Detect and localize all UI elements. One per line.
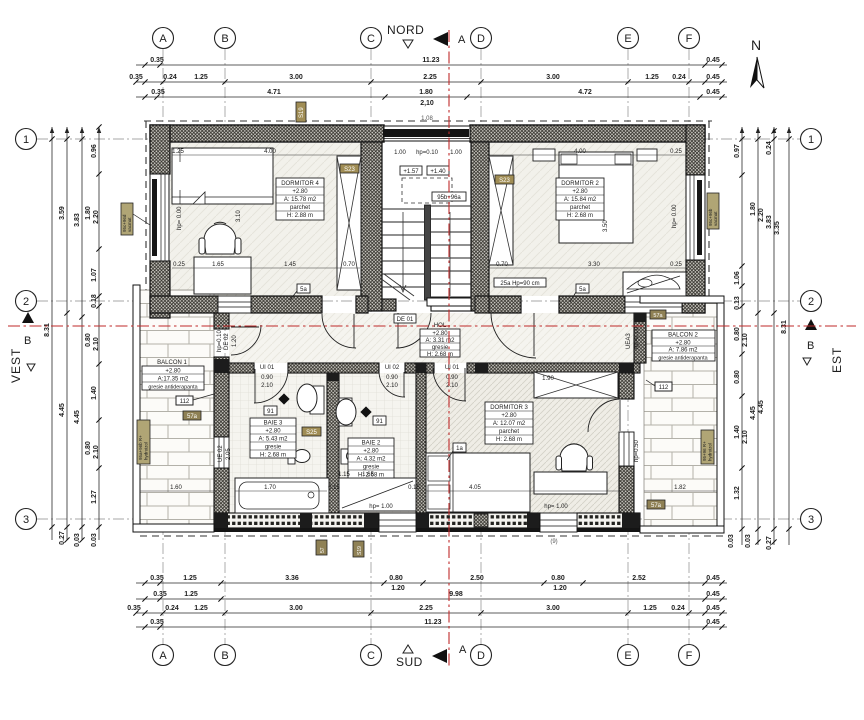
svg-text:A: 7.86 m2: A: 7.86 m2 [668,348,698,354]
svg-text:hp= 1.00: hp= 1.00 [369,504,393,510]
svg-text:DORMITOR 2: DORMITOR 2 [561,181,599,187]
svg-text:A: 12.07 m2: A: 12.07 m2 [493,421,526,427]
svg-text:hp= 0.00: hp= 0.00 [177,206,183,230]
svg-text:A: 4.32 m2: A: 4.32 m2 [356,457,386,463]
svg-text:C: C [367,650,375,662]
svg-text:0.80: 0.80 [85,333,92,347]
svg-text:hydroizol: hydroizol [708,443,713,461]
svg-text:hp= 1.00: hp= 1.00 [544,504,568,510]
svg-text:3.00: 3.00 [289,605,303,612]
svg-text:0.45: 0.45 [706,619,720,626]
svg-text:57a: 57a [653,313,663,319]
svg-text:3.36: 3.36 [285,575,299,582]
svg-text:4.71: 4.71 [267,89,281,96]
svg-text:0.90: 0.90 [446,375,458,381]
svg-text:SUD: SUD [396,655,423,669]
svg-text:1: 1 [808,134,814,146]
svg-text:0.27: 0.27 [766,536,773,550]
svg-text:0.25: 0.25 [173,262,185,268]
svg-text:0.45: 0.45 [706,591,720,598]
svg-text:F: F [686,650,693,662]
svg-text:BALCON 2: BALCON 2 [668,333,698,339]
svg-text:vacmat: vacmat [713,211,718,226]
svg-text:0.45: 0.45 [706,575,720,582]
svg-text:A: A [159,33,167,45]
svg-text:57a: 57a [187,414,198,420]
svg-text:1.07: 1.07 [91,268,98,282]
svg-text:A: 15.78 m2: A: 15.78 m2 [284,197,317,203]
svg-text:0.45: 0.45 [706,57,720,64]
svg-text:0.03: 0.03 [74,533,81,547]
svg-text:91: 91 [267,409,274,415]
svg-text:gresie: gresie [363,465,380,471]
svg-text:3.00: 3.00 [546,605,560,612]
svg-text:3.83: 3.83 [74,213,81,227]
svg-text:B: B [221,33,228,45]
svg-text:S23: S23 [344,167,355,173]
svg-text:BAIE 2: BAIE 2 [362,441,381,447]
svg-text:4.45: 4.45 [758,400,765,414]
svg-text:D: D [477,650,485,662]
svg-text:+2.80: +2.80 [501,413,517,419]
svg-text:2.20: 2.20 [758,208,765,222]
svg-text:S19: S19 [299,107,305,118]
svg-text:gresie antiderapanta: gresie antiderapanta [658,356,707,362]
svg-text:B: B [221,650,228,662]
svg-text:2.10: 2.10 [93,337,100,351]
svg-text:0.80: 0.80 [389,575,403,582]
svg-text:gresie: gresie [265,445,282,451]
svg-text:0.80: 0.80 [734,327,741,341]
svg-text:+1.40: +1.40 [430,169,446,175]
svg-text:57a: 57a [651,503,662,509]
svg-text:1.25: 1.25 [172,149,184,155]
svg-text:E: E [624,650,631,662]
svg-text:91: 91 [376,419,383,425]
svg-text:0.70: 0.70 [343,262,355,268]
svg-text:parchet: parchet [290,205,310,211]
svg-text:5a: 5a [579,287,586,293]
svg-text:2,10: 2,10 [420,100,434,107]
svg-text:3: 3 [808,514,814,526]
svg-text:1.20: 1.20 [232,335,238,347]
svg-text:1.25: 1.25 [194,605,208,612]
svg-text:95+96 R+: 95+96 R+ [702,441,707,461]
svg-text:1.40: 1.40 [734,425,741,439]
svg-text:1.65: 1.65 [362,472,374,478]
svg-text:0.90: 0.90 [386,375,398,381]
svg-text:0.35: 0.35 [151,89,165,96]
svg-text:3.50: 3.50 [603,220,609,232]
svg-text:gresie: gresie [432,345,449,351]
svg-text:95a+96b R+: 95a+96b R+ [138,435,143,460]
svg-text:1.25: 1.25 [194,74,208,81]
svg-text:(9): (9) [550,539,557,545]
svg-text:+1.57: +1.57 [403,169,419,175]
svg-text:4.05: 4.05 [469,485,481,491]
svg-text:0.80: 0.80 [85,441,92,455]
svg-text:2.25: 2.25 [419,605,433,612]
svg-text:0.25: 0.25 [670,262,682,268]
svg-text:DE 02: DE 02 [224,333,230,350]
svg-text:3.10: 3.10 [236,210,242,222]
svg-text:+2.80: +2.80 [265,429,281,435]
svg-text:0.03: 0.03 [745,534,752,548]
svg-text:2.25: 2.25 [423,74,437,81]
svg-text:N: N [751,37,761,53]
svg-text:9.98: 9.98 [449,591,463,598]
svg-text:D: D [477,33,485,45]
svg-text:A: 5.43 m2: A: 5.43 m2 [258,437,288,443]
svg-text:5a: 5a [300,287,307,293]
svg-text:2.10: 2.10 [742,430,749,444]
svg-text:0.35: 0.35 [150,57,164,64]
svg-text:+2.80: +2.80 [363,449,379,455]
svg-text:1.60: 1.60 [170,485,182,491]
svg-text:0.80: 0.80 [551,575,565,582]
svg-text:2.10: 2.10 [386,383,398,389]
svg-text:NORD: NORD [387,23,424,37]
svg-text:parchet: parchet [499,429,519,435]
svg-text:1.00: 1.00 [450,150,462,156]
svg-text:0.45: 0.45 [706,89,720,96]
svg-text:VEST: VEST [9,348,23,383]
svg-text:3.30: 3.30 [588,262,600,268]
svg-text:A: 15.84 m2: A: 15.84 m2 [564,197,597,203]
svg-text:UE 02: UE 02 [218,445,224,462]
svg-text:4.00: 4.00 [264,149,276,155]
svg-text:A: A [159,650,167,662]
svg-text:0.15: 0.15 [328,485,340,491]
svg-text:3: 3 [23,514,29,526]
svg-text:+2.80: +2.80 [165,369,181,375]
svg-text:H: 2.68 m: H: 2.68 m [496,437,522,443]
svg-text:3.83: 3.83 [766,215,773,229]
svg-text:2.50: 2.50 [470,575,484,582]
svg-text:11.23: 11.23 [424,619,441,626]
svg-text:8.31: 8.31 [781,320,788,334]
svg-text:C: C [367,33,375,45]
svg-text:2.10: 2.10 [261,383,273,389]
svg-text:0.35: 0.35 [153,591,167,598]
svg-text:0.35: 0.35 [150,575,164,582]
svg-text:1.25: 1.25 [184,591,198,598]
svg-text:hp=0.10: hp=0.10 [634,326,640,349]
svg-text:S23: S23 [499,178,510,184]
svg-text:2: 2 [23,296,29,308]
svg-text:S19: S19 [357,546,363,555]
svg-text:2.20: 2.20 [93,210,100,224]
svg-text:H: 2.68 m: H: 2.68 m [260,453,286,459]
svg-text:0.24: 0.24 [766,141,773,155]
svg-text:+2.80: +2.80 [432,331,448,337]
svg-text:1: 1 [23,134,29,146]
svg-text:3.00: 3.00 [289,74,303,81]
svg-text:2.05: 2.05 [226,448,232,460]
svg-text:A: A [458,34,466,46]
svg-text:1.25: 1.25 [643,605,657,612]
svg-text:S25: S25 [306,430,317,436]
svg-text:UI 02: UI 02 [385,365,400,371]
svg-text:0.24: 0.24 [165,605,179,612]
svg-text:4.45: 4.45 [59,403,66,417]
svg-text:H: 2.68 m: H: 2.68 m [567,213,593,219]
svg-text:DORMITOR 3: DORMITOR 3 [490,405,528,411]
svg-text:UI 01: UI 01 [260,365,275,371]
svg-text:11.23: 11.23 [422,57,439,64]
svg-text:1.65: 1.65 [212,262,224,268]
svg-text:0.90: 0.90 [261,375,273,381]
svg-text:1.00: 1.00 [394,150,406,156]
svg-text:UI 01: UI 01 [445,365,460,371]
svg-text:hp=0.50: hp=0.50 [634,439,640,462]
svg-text:0.15: 0.15 [408,485,420,491]
svg-text:0.97: 0.97 [734,144,741,158]
svg-text:0.18: 0.18 [91,294,98,308]
svg-text:1.06: 1.06 [734,271,741,285]
svg-text:hp=0.10: hp=0.10 [416,150,439,156]
svg-text:1.15: 1.15 [338,472,350,478]
svg-text:1.82: 1.82 [674,485,686,491]
svg-text:B: B [24,335,31,347]
svg-text:4.72: 4.72 [578,89,592,96]
svg-text:0.70: 0.70 [496,262,508,268]
svg-text:0.24: 0.24 [671,605,685,612]
svg-text:0.25: 0.25 [670,149,682,155]
svg-text:0.35: 0.35 [127,605,141,612]
svg-text:2.10: 2.10 [446,383,458,389]
svg-text:1.80: 1.80 [419,89,433,96]
svg-text:1.45: 1.45 [284,262,296,268]
svg-text:DORMITOR 4: DORMITOR 4 [281,181,319,187]
svg-text:3.35: 3.35 [774,221,781,235]
svg-text:112: 112 [180,399,190,405]
svg-text:1.25: 1.25 [645,74,659,81]
svg-text:hp=0.10: hp=0.10 [217,329,223,352]
svg-text:57: 57 [320,547,326,553]
svg-text:vacmat: vacmat [127,217,132,232]
svg-text:F: F [686,33,693,45]
svg-text:DE 01: DE 01 [397,317,414,323]
svg-text:1.40: 1.40 [91,386,98,400]
svg-text:E: E [624,33,631,45]
svg-text:0.03: 0.03 [728,534,735,548]
svg-text:0.80: 0.80 [734,370,741,384]
svg-text:1.25: 1.25 [183,575,197,582]
svg-text:UEA3: UEA3 [626,333,632,349]
svg-text:hp= 0.00: hp= 0.00 [672,204,678,228]
svg-text:BAIE 3: BAIE 3 [264,421,283,427]
svg-text:2: 2 [808,296,814,308]
svg-text:parchet: parchet [570,205,590,211]
svg-text:1.20: 1.20 [391,585,405,592]
svg-text:8.31: 8.31 [44,323,51,337]
svg-text:0.27: 0.27 [59,531,66,545]
svg-text:A: 3.31 m2: A: 3.31 m2 [425,338,455,344]
svg-text:3.59: 3.59 [59,206,66,220]
svg-text:2.10: 2.10 [93,445,100,459]
svg-text:+2.80: +2.80 [292,189,308,195]
svg-text:112: 112 [659,385,669,391]
svg-text:2.52: 2.52 [632,575,646,582]
svg-text:A:17.35 m2: A:17.35 m2 [158,377,189,383]
svg-text:H: 2.88 m: H: 2.88 m [287,213,313,219]
svg-text:1.20: 1.20 [553,585,567,592]
svg-text:4.45: 4.45 [750,406,757,420]
svg-text:1a: 1a [456,446,463,452]
svg-text:0.96: 0.96 [91,144,98,158]
svg-text:25a Hp=90 cm: 25a Hp=90 cm [500,281,539,287]
svg-text:0.35: 0.35 [129,74,143,81]
svg-text:+2.80: +2.80 [675,341,691,347]
svg-text:0.45: 0.45 [706,74,720,81]
svg-text:0.13: 0.13 [734,296,741,310]
svg-text:hydroizol: hydroizol [144,442,149,460]
svg-text:1.80: 1.80 [750,202,757,216]
svg-text:gresie antiderapanta: gresie antiderapanta [148,385,197,391]
svg-text:0.24: 0.24 [672,74,686,81]
svg-text:1.70: 1.70 [264,485,276,491]
svg-text:A: A [459,644,467,656]
svg-text:EST: EST [830,347,844,373]
svg-text:1.90: 1.90 [542,376,554,382]
svg-text:1.32: 1.32 [734,486,741,500]
svg-text:B: B [807,340,814,352]
svg-text:BALCON 1: BALCON 1 [157,360,187,366]
svg-text:3.00: 3.00 [546,74,560,81]
svg-text:1.80: 1.80 [85,206,92,220]
svg-text:+2.80: +2.80 [572,189,588,195]
svg-text:2.10: 2.10 [742,333,749,347]
svg-text:0.45: 0.45 [706,605,720,612]
svg-text:4.45: 4.45 [74,410,81,424]
svg-text:0.03: 0.03 [91,533,98,547]
svg-text:0.24: 0.24 [163,74,177,81]
svg-text:0.35: 0.35 [150,619,164,626]
svg-text:1.27: 1.27 [91,490,98,504]
svg-text:4.00: 4.00 [574,149,586,155]
